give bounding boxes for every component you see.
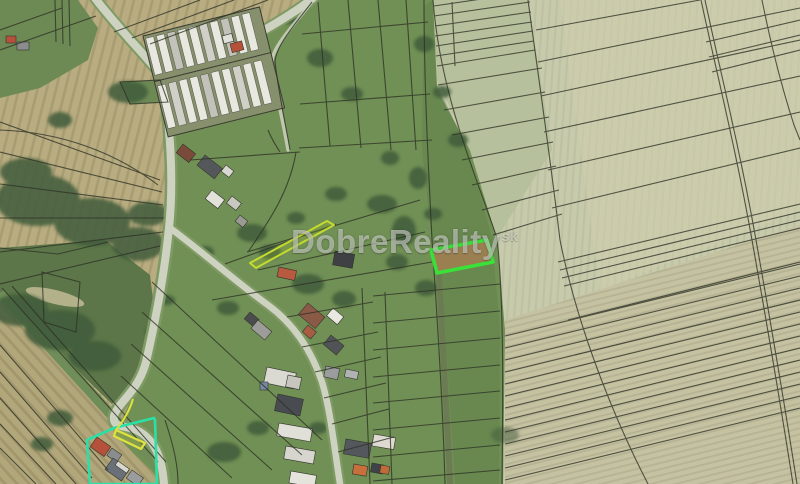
- aerial-map-image: [0, 0, 800, 484]
- map-container[interactable]: DobreRealitysk: [0, 0, 800, 484]
